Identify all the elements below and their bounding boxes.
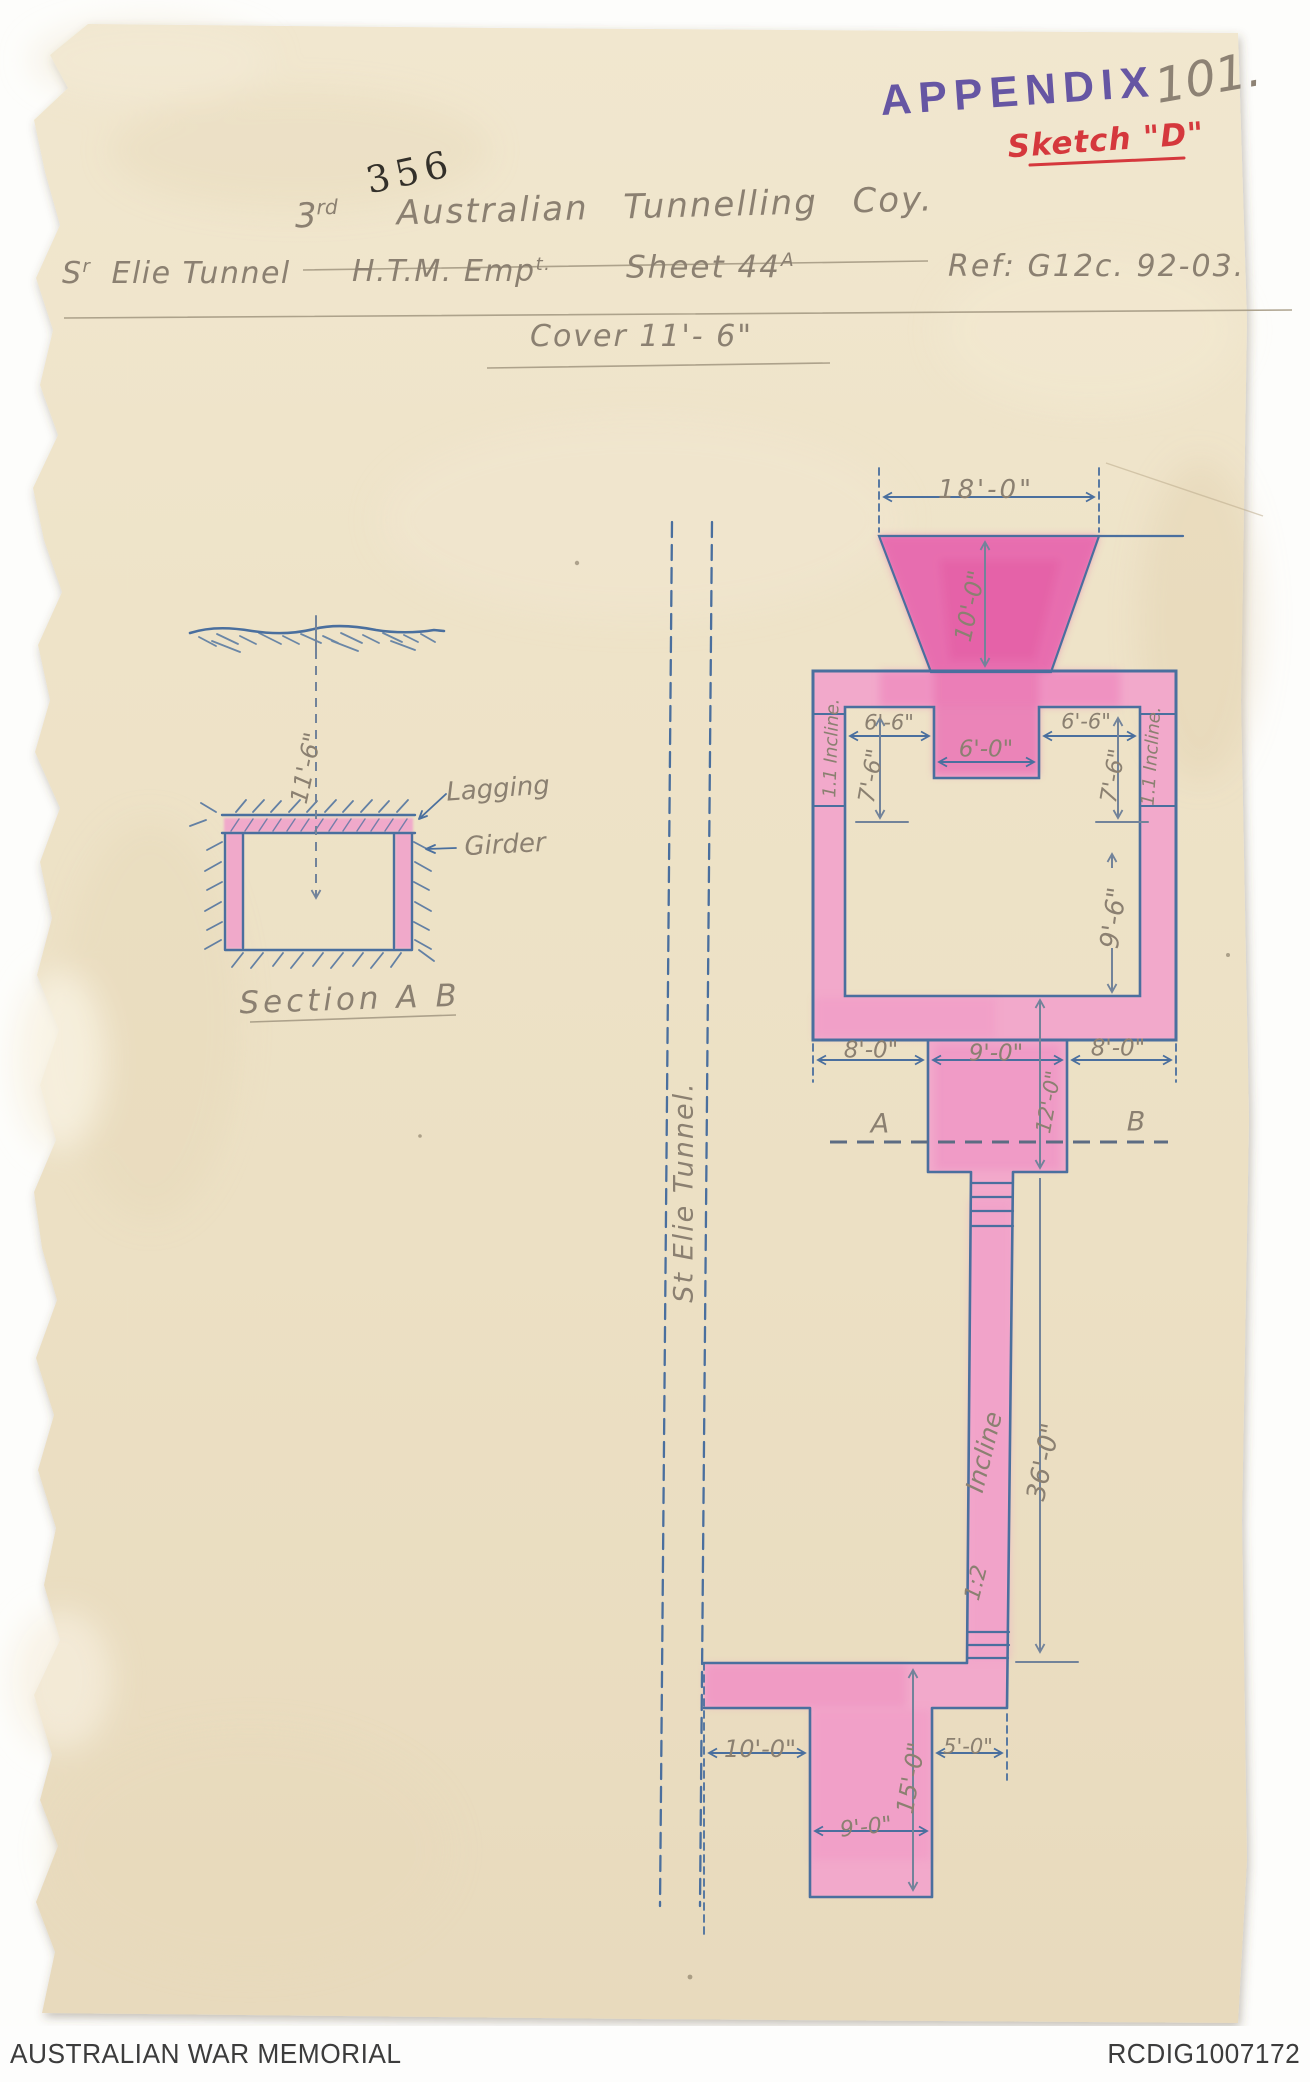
dim-base-left: 8'-0" bbox=[844, 1040, 898, 1063]
subtitle-location: Sr Elie Tunnel bbox=[62, 258, 291, 289]
sheet-sup: A bbox=[781, 250, 796, 271]
subtitle-system: H.T.M. Empt. bbox=[352, 256, 551, 287]
location-sup: r bbox=[83, 256, 92, 277]
title-ordinal: rd bbox=[316, 195, 338, 220]
tunnel-name-label: St Elie Tunnel. bbox=[671, 1081, 698, 1302]
section-caption: Section A B bbox=[239, 981, 461, 1020]
dim-base-right: 8'-0" bbox=[1091, 1038, 1145, 1061]
system-sup: t. bbox=[536, 254, 552, 275]
dim-crater-width: 18'-0" bbox=[938, 477, 1034, 503]
dim-ledge-left: 6'-6" bbox=[864, 713, 914, 734]
dim-winze-width: 9'-0" bbox=[839, 1814, 893, 1841]
dim-ledge-right: 6'-6" bbox=[1061, 712, 1111, 733]
title-number: 3 bbox=[294, 196, 317, 237]
dim-gallery-left: 10'-0" bbox=[724, 1737, 796, 1761]
sheet-text: Sheet 44 bbox=[626, 249, 781, 285]
system-text: H.T.M. Emp bbox=[352, 254, 536, 289]
footer-organisation: AUSTRALIAN WAR MEMORIAL bbox=[10, 2038, 402, 2070]
footer-bar: AUSTRALIAN WAR MEMORIAL RCDIG1007172 bbox=[0, 2026, 1310, 2082]
label-lagging: Lagging bbox=[445, 772, 550, 805]
dim-shaft-top-width: 6'-0" bbox=[959, 739, 1013, 762]
subtitle-reference: Ref: G12c. 92-03. bbox=[948, 252, 1245, 282]
dim-gallery-right: 5'-0" bbox=[943, 1737, 993, 1758]
subtitle-sheet: Sheet 44A bbox=[626, 252, 796, 283]
footer-reference-id: RCDIG1007172 bbox=[1107, 2038, 1300, 2070]
section-point-b: B bbox=[1127, 1109, 1146, 1136]
scanned-document-page: 356 3rd Australian Tunnelling Coy. Sr El… bbox=[0, 0, 1310, 2082]
label-girder: Girder bbox=[464, 830, 546, 860]
cover-note: Cover 11'- 6" bbox=[530, 322, 753, 352]
label-incline-left: 1.1 Incline. bbox=[821, 698, 842, 798]
dim-base-middle: 9'-0" bbox=[969, 1043, 1023, 1066]
location-initial: S bbox=[62, 256, 83, 291]
location-rest: Elie Tunnel bbox=[112, 256, 291, 291]
section-point-a: A bbox=[871, 1111, 889, 1138]
